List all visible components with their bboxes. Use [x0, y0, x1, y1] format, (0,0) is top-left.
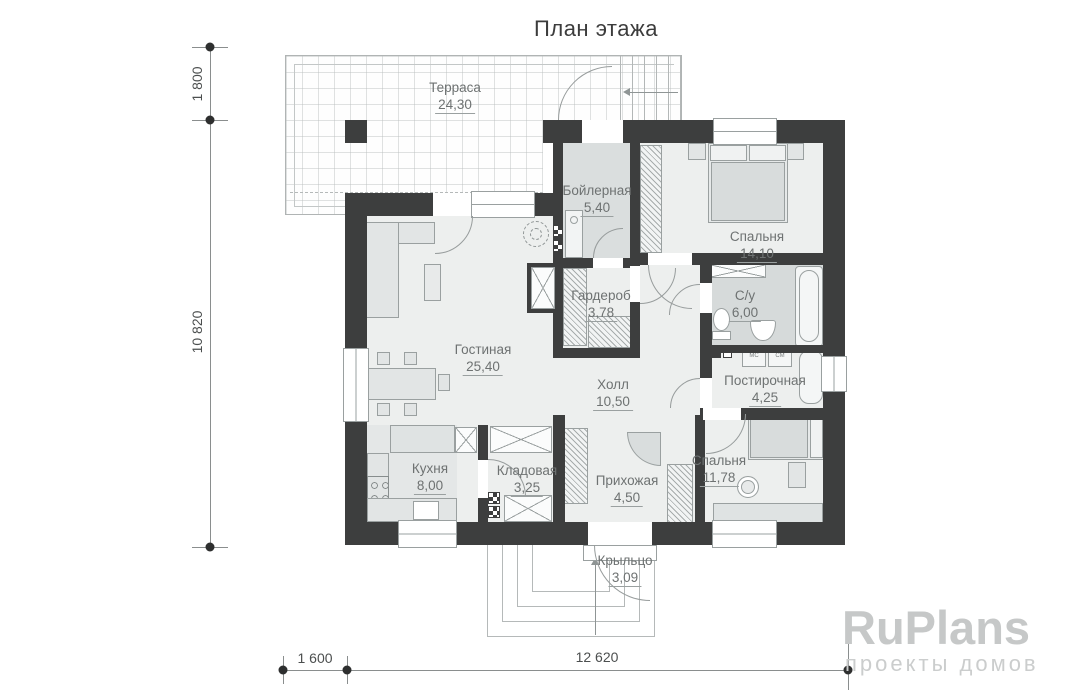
wall: [712, 345, 823, 353]
door-opening: [648, 253, 692, 265]
door-opening: [433, 193, 473, 216]
room-name: Спальня: [730, 229, 784, 245]
room-area: 24,30: [435, 97, 475, 115]
room-label-porch: Крыльцо3,09: [597, 553, 652, 587]
toilet-tank-symbol: [712, 331, 731, 340]
room-name: Терраса: [429, 80, 481, 96]
room-name: Гардероб: [571, 288, 630, 304]
room-area: 8,00: [414, 478, 446, 496]
room-area: 10,50: [593, 394, 633, 412]
sink-symbol: [413, 501, 439, 520]
room-area: 3,78: [585, 305, 617, 323]
chair-symbol: [438, 374, 450, 391]
door-opening: [700, 378, 712, 408]
dimension-dot: [206, 43, 215, 52]
chair-symbol: [404, 403, 417, 416]
chair-symbol: [377, 352, 390, 365]
door-opening: [478, 460, 488, 498]
window-symbol: [398, 520, 457, 548]
ruplans-logo: RuPlans: [842, 600, 1030, 655]
nightstand-symbol: [786, 143, 804, 160]
porch-arrow-line: [595, 565, 596, 635]
toilet-symbol: [713, 308, 730, 331]
room-label-bedroom2: Спальня11,78: [692, 453, 746, 487]
page-title: План этажа: [534, 16, 658, 42]
room-area: 4,50: [611, 490, 643, 508]
floor-corridor: [553, 358, 563, 415]
ruplans-tagline: проекты домов: [845, 651, 1039, 677]
coffee-table-symbol: [424, 264, 441, 301]
wall: [345, 120, 367, 143]
room-area: 11,78: [700, 470, 739, 488]
room-label-laundry: Постирочная4,25: [724, 373, 806, 407]
wall: [553, 348, 640, 358]
chair-symbol: [404, 352, 417, 365]
room-area: 6,00: [729, 305, 761, 323]
room-label-hall: Холл10,50: [593, 377, 633, 411]
dimension-line-bottom: [283, 670, 848, 671]
fridge-symbol: [455, 427, 477, 453]
shaft-symbol: [553, 240, 563, 252]
sofa-symbol: [365, 222, 399, 318]
room-area: 3,25: [511, 480, 543, 498]
stove-symbol-inner: [531, 267, 555, 309]
room-label-terrace: Терраса24,30: [429, 80, 481, 114]
entrance-opening: [588, 522, 652, 545]
wardrobe-shelf: [640, 145, 662, 253]
room-name: Спальня: [692, 453, 746, 469]
room-name: Прихожая: [596, 473, 659, 489]
blanket-symbol: [711, 162, 785, 221]
terrace-stairs-arrow-line: [630, 92, 678, 93]
dimension-label-10820: 10 820: [189, 311, 205, 354]
room-label-boiler: Бойлерная5,40: [562, 183, 631, 217]
bath-cabinet: [710, 264, 766, 278]
room-area: 5,40: [581, 200, 613, 218]
room-name: Кухня: [412, 461, 448, 477]
dimension-label-12620: 12 620: [576, 649, 619, 665]
room-name: Бойлерная: [562, 183, 631, 199]
dimension-dot: [343, 666, 352, 675]
side-table-symbol: [788, 462, 806, 488]
terrace-inner-line-bottom: [294, 206, 352, 207]
terrace-inner-line-left: [294, 64, 295, 206]
dimension-dot: [279, 666, 288, 675]
room-area: 14,10: [737, 246, 777, 264]
dining-table-symbol: [368, 368, 436, 400]
nightstand-symbol: [688, 143, 706, 160]
room-area: 4,25: [749, 390, 781, 408]
room-name: Холл: [593, 377, 633, 393]
door-opening: [630, 266, 640, 302]
room-label-livingroom: Гостиная25,40: [455, 342, 512, 376]
room-label-wardrobe: Гардероб3,78: [571, 288, 630, 322]
room-name: Постирочная: [724, 373, 806, 389]
room-name: Крыльцо: [597, 553, 652, 569]
room-name: Гостиная: [455, 342, 512, 358]
dimension-label-1800: 1 800: [189, 66, 205, 101]
room-name: С/у: [729, 288, 761, 304]
chair-symbol: [377, 403, 390, 416]
shaft-symbol: [553, 225, 563, 237]
plant-symbol-inner: [530, 228, 542, 240]
wall: [823, 120, 845, 545]
door-opening: [700, 283, 712, 313]
dimension-dot: [206, 543, 215, 552]
wardrobe-shelf: [562, 428, 588, 504]
terrace-stairs-arrow: [623, 88, 630, 96]
pillow-symbol: [749, 145, 786, 161]
shaft-symbol: [488, 506, 500, 518]
window-symbol: [821, 356, 847, 392]
room-area: 3,09: [609, 570, 641, 588]
dimension-label-1600: 1 600: [297, 650, 332, 666]
window-symbol: [712, 520, 777, 548]
room-label-bathroom: С/у6,00: [729, 288, 761, 322]
dimension-dot: [206, 116, 215, 125]
room-label-pantry: Кладовая3,25: [497, 463, 557, 497]
room-name: Кладовая: [497, 463, 557, 479]
room-label-bedroom1: Спальня14,10: [730, 229, 784, 263]
window-symbol: [713, 118, 777, 145]
window-symbol: [343, 348, 369, 422]
window-symbol: [471, 191, 535, 218]
storage-shelf: [490, 426, 552, 453]
door-opening: [582, 120, 623, 143]
boiler-symbol-dial: [570, 216, 578, 224]
pillow-symbol: [710, 145, 747, 161]
room-label-kitchen: Кухня8,00: [412, 461, 448, 495]
kitchen-counter: [367, 498, 457, 522]
bathtub-symbol-inner: [799, 270, 819, 342]
kitchen-counter: [390, 425, 455, 453]
door-opening: [593, 258, 623, 268]
floor-plan: МС СМ: [0, 0, 1084, 700]
room-label-entryhall: Прихожая4,50: [596, 473, 659, 507]
room-area: 25,40: [463, 359, 503, 377]
terrace-inner-line-top: [294, 64, 674, 65]
storage-shelf: [504, 495, 552, 522]
